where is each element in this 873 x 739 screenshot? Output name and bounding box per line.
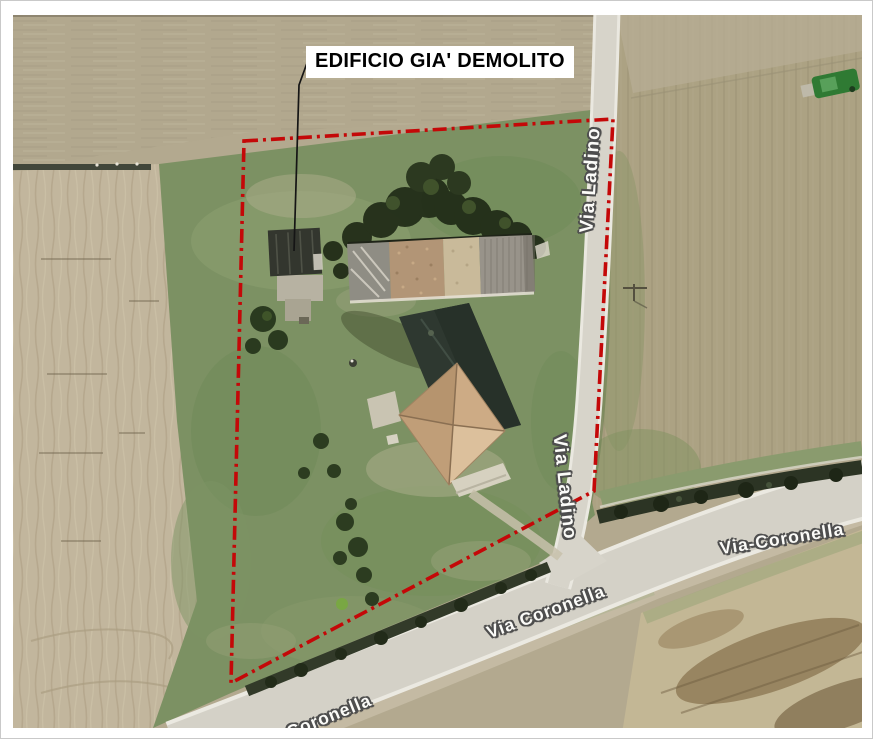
aerial-photo: EDIFICIO GIA' DEMOLITO Via Ladino Via La…: [13, 15, 862, 728]
aerial-figure: EDIFICIO GIA' DEMOLITO Via Ladino Via La…: [0, 0, 873, 739]
aerial-imagery: [13, 15, 862, 728]
bright-bush: [336, 598, 348, 610]
barn-building: [347, 235, 550, 302]
demolished-building-label: EDIFICIO GIA' DEMOLITO: [306, 46, 574, 78]
